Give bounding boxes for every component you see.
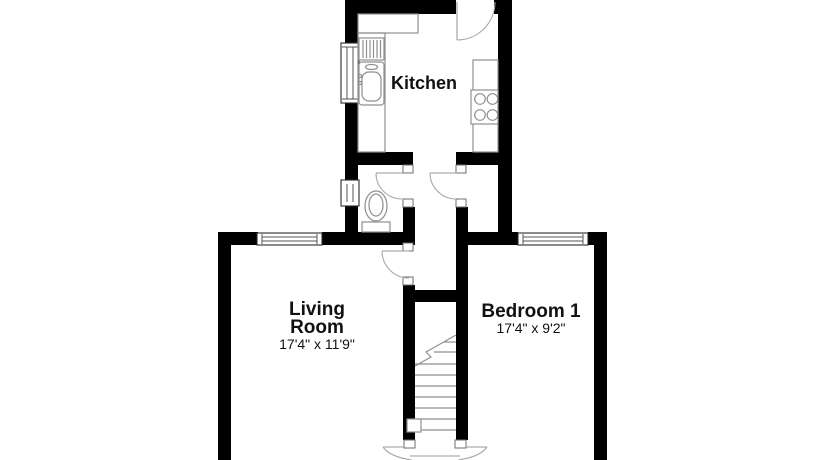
living-room-door bbox=[382, 243, 413, 285]
floor-plan-drawing: Kitchen Living Room 17'4" x 11'9" Bedroo… bbox=[0, 0, 830, 460]
toilet-icon bbox=[362, 191, 390, 232]
living-room-label-line2: Room bbox=[290, 317, 344, 338]
kitchen-window bbox=[341, 43, 359, 103]
room-living-room: Living Room 17'4" x 11'9" bbox=[279, 299, 355, 352]
sink-icon bbox=[358, 38, 384, 105]
walls bbox=[218, 0, 607, 460]
room-bedroom-1: Bedroom 1 17'4" x 9'2" bbox=[481, 301, 581, 336]
living-room-window bbox=[257, 233, 322, 245]
living-room-dimensions: 17'4" x 11'9" bbox=[279, 336, 355, 352]
kitchen-label: Kitchen bbox=[391, 73, 457, 93]
bathroom-window bbox=[341, 180, 359, 206]
kitchen-exterior-door bbox=[457, 2, 495, 40]
bedroom-window bbox=[518, 233, 588, 245]
closet-door bbox=[430, 165, 466, 207]
bedroom-1-dimensions: 17'4" x 9'2" bbox=[497, 320, 566, 336]
bedroom-1-label: Bedroom 1 bbox=[481, 301, 581, 322]
stair-newel bbox=[407, 419, 421, 432]
entrance-door bbox=[383, 440, 487, 460]
floor-plan: Kitchen Living Room 17'4" x 11'9" Bedroo… bbox=[0, 0, 830, 460]
stove-icon bbox=[471, 90, 498, 124]
room-kitchen: Kitchen bbox=[391, 73, 457, 93]
